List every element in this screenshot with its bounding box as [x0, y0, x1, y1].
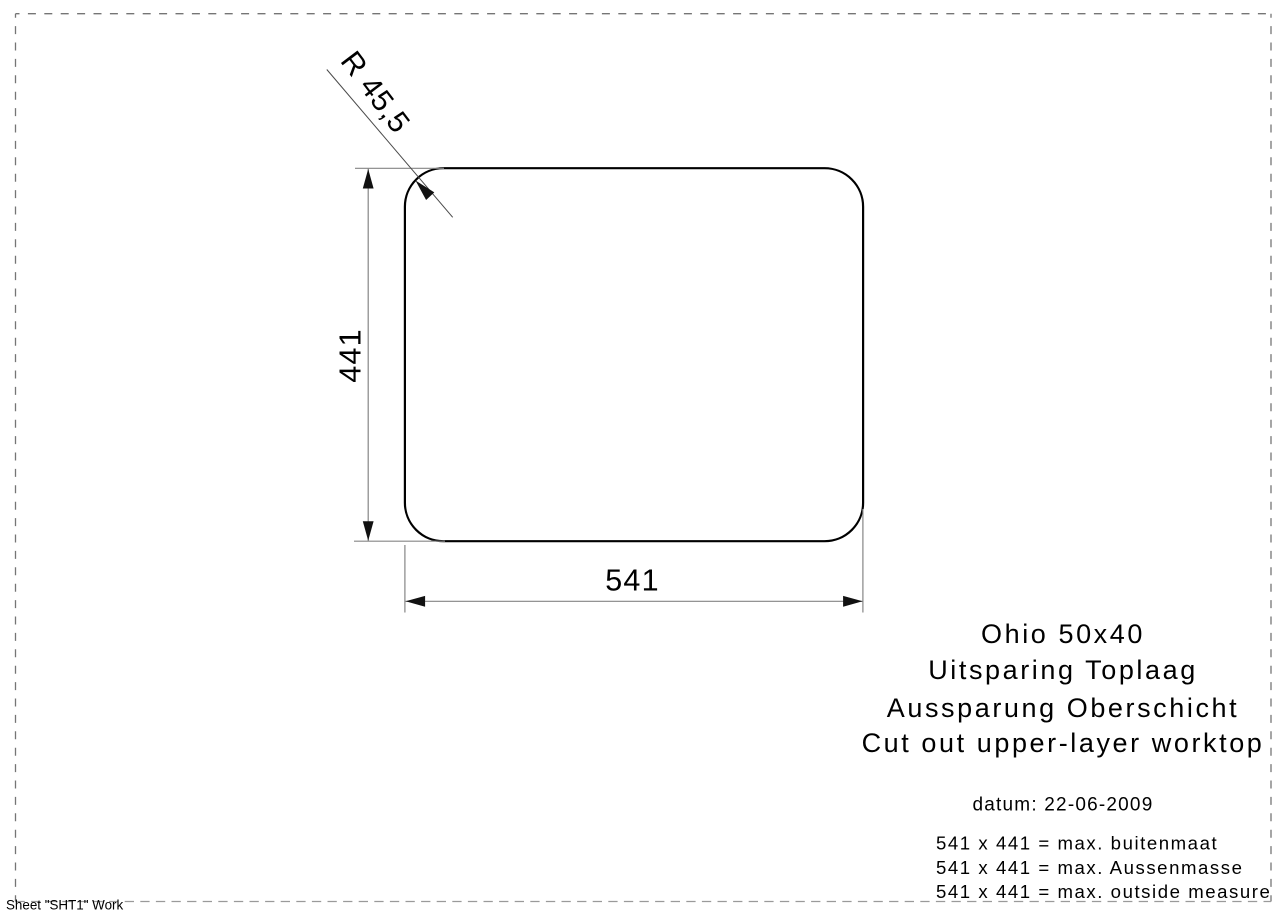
svg-text:datum: 22-06-2009: datum: 22-06-2009 — [973, 795, 1154, 816]
svg-text:Uitsparing Toplaag: Uitsparing Toplaag — [928, 655, 1198, 685]
svg-text:441: 441 — [334, 328, 368, 383]
svg-text:Sheet "SHT1" Work: Sheet "SHT1" Work — [6, 897, 123, 912]
svg-text:Ohio 50x40: Ohio 50x40 — [981, 619, 1145, 649]
svg-text:Cut out upper-layer worktop: Cut out upper-layer worktop — [862, 728, 1265, 758]
svg-text:Aussparung Oberschicht: Aussparung Oberschicht — [887, 693, 1239, 723]
svg-text:541 x 441 = max. buitenmaat: 541 x 441 = max. buitenmaat — [936, 833, 1218, 854]
svg-text:541 x 441 = max. Aussenmasse: 541 x 441 = max. Aussenmasse — [936, 857, 1243, 878]
svg-text:541 x 441 = max. outside measu: 541 x 441 = max. outside measure — [936, 881, 1271, 902]
svg-text:541: 541 — [605, 564, 660, 598]
